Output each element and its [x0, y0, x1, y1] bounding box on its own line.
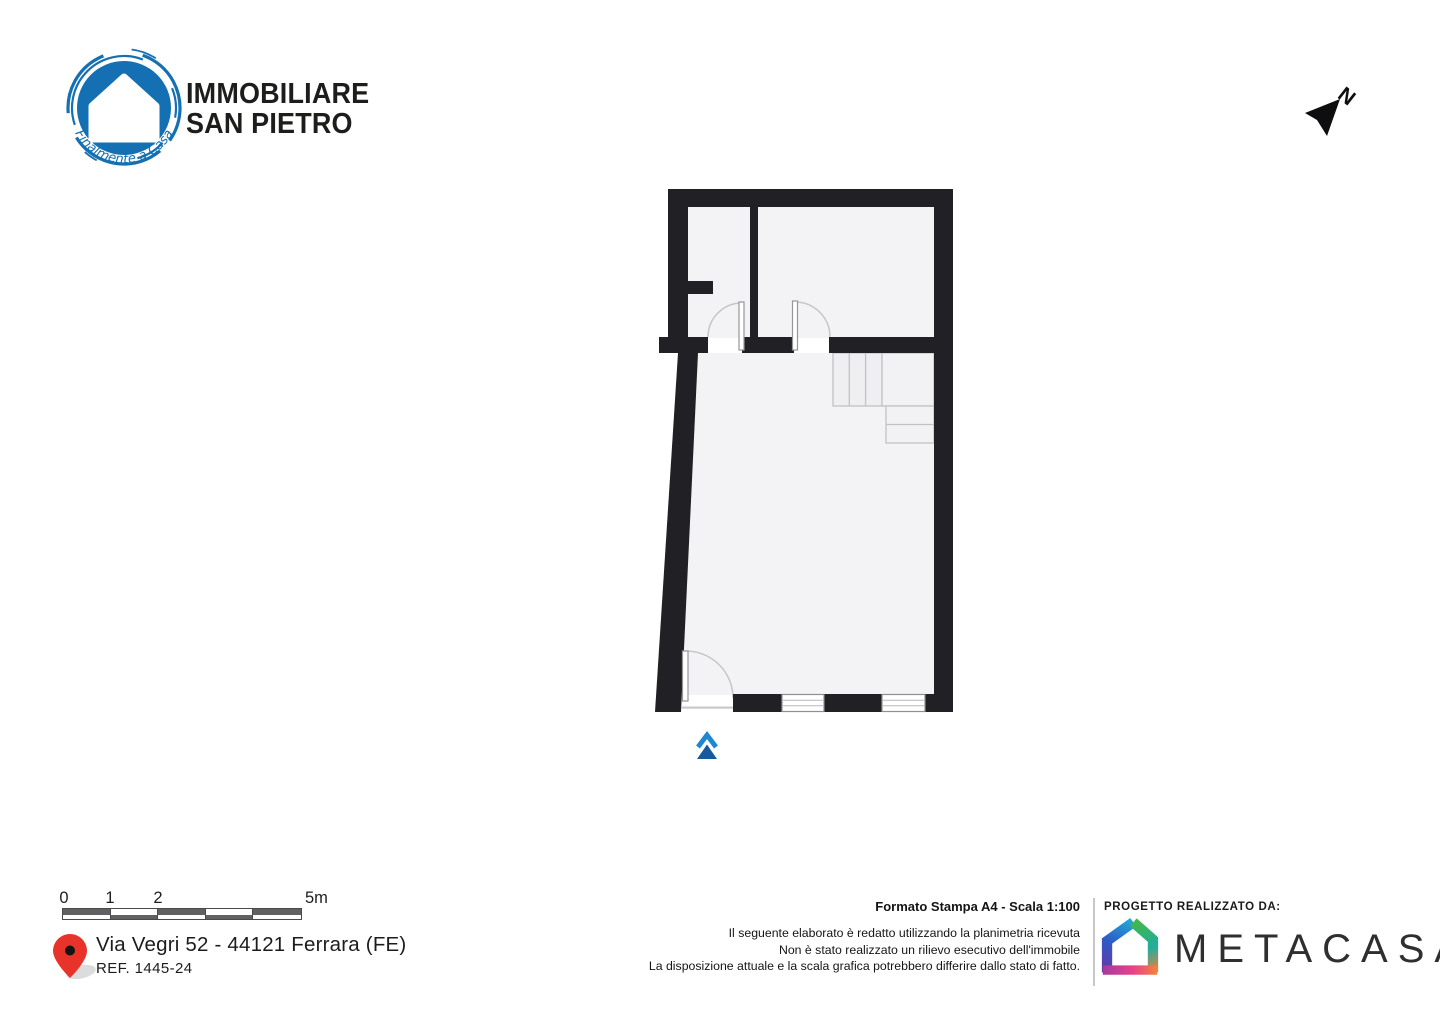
agency-name-line2: SAN PIETRO: [186, 109, 369, 139]
agency-logo-icon: Finalmente a Casa: [60, 38, 200, 178]
scale-label-2: 2: [153, 889, 162, 908]
scale-bar: 0 1 2 5m: [62, 889, 324, 923]
entrance-threshold: [681, 707, 733, 709]
scale-label-0: 0: [59, 889, 68, 908]
print-format-line: Formato Stampa A4 - Scala 1:100: [560, 899, 1080, 914]
floor-plan: [630, 180, 980, 780]
entrance-arrow-icon: [697, 735, 717, 759]
scale-label-1: 1: [105, 889, 114, 908]
scale-bar-graphic: [62, 908, 302, 920]
scale-bar-labels: 0 1 2 5m: [62, 889, 302, 907]
disclaimer-line-3: La disposizione attuale e la scala grafi…: [560, 958, 1080, 975]
credits-heading: PROGETTO REALIZZATO DA:: [1104, 901, 1281, 913]
location-pin-icon: [48, 931, 96, 983]
scale-bar-cell: [253, 915, 301, 919]
metacasa-logo: METACASA: [1100, 916, 1440, 980]
metacasa-wordmark: METACASA: [1174, 927, 1440, 972]
disclaimer-line-1: Il seguente elaborato è redatto utilizza…: [560, 925, 1080, 942]
disclaimer-line-2: Non è stato realizzato un rilievo esecut…: [560, 942, 1080, 959]
print-info: Formato Stampa A4 - Scala 1:100 Il segue…: [560, 899, 1080, 975]
metacasa-house-icon: [1100, 916, 1160, 980]
agency-name: IMMOBILIARE SAN PIETRO: [186, 79, 369, 139]
agency-name-line1: IMMOBILIARE: [186, 79, 369, 109]
address-line: Via Vegri 52 - 44121 Ferrara (FE): [96, 933, 406, 957]
reference-number: REF. 1445-24: [96, 960, 406, 977]
property-address: Via Vegri 52 - 44121 Ferrara (FE) REF. 1…: [96, 933, 406, 977]
north-arrow-icon: N: [1290, 70, 1390, 150]
footer-divider: [1093, 898, 1095, 986]
scale-bar-cell: [206, 915, 254, 919]
scale-label-5m: 5m: [305, 889, 328, 908]
scale-bar-cell: [111, 915, 159, 919]
room-floors: [681, 206, 936, 695]
scale-bar-cell: [63, 915, 111, 919]
scale-bar-cell: [158, 915, 206, 919]
